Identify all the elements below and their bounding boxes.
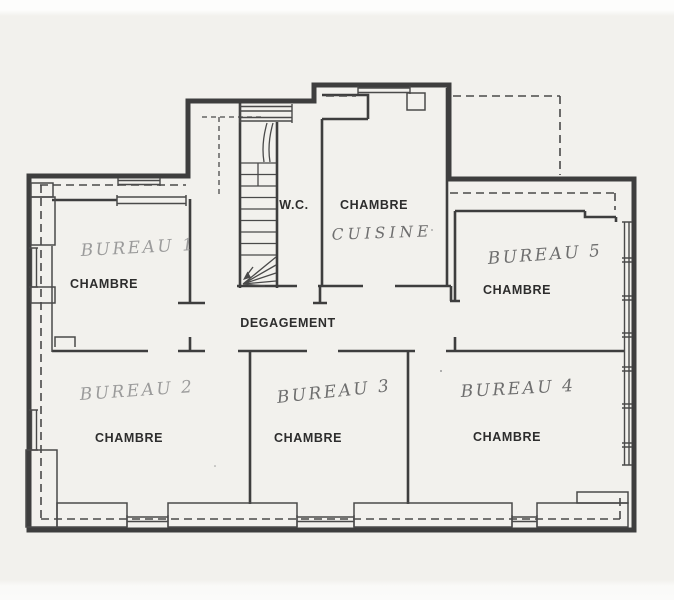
label-cuisine: CUISINE (331, 222, 432, 244)
window-bottom-1 (127, 515, 168, 527)
staircase (241, 123, 276, 286)
label-chambre-bureau-3: CHAMBRE (274, 431, 342, 445)
label-bureau-5: BUREAU 5 (486, 241, 603, 269)
floor-plan-scan: BUREAU 1 CHAMBRE W.C. CHAMBRE CUISINE BU… (0, 0, 674, 600)
label-bureau-1: BUREAU 1 (79, 235, 196, 261)
label-degagement: DEGAGEMENT (240, 316, 336, 330)
floor-plan-drawing: BUREAU 1 CHAMBRE W.C. CHAMBRE CUISINE BU… (0, 0, 674, 600)
window-bottom-2 (297, 515, 354, 527)
label-bureau-3: BUREAU 3 (275, 376, 392, 408)
label-bureau-2: BUREAU 2 (78, 377, 195, 405)
label-wc: W.C. (279, 198, 308, 212)
outer-walls (29, 85, 634, 530)
interior-thin-lines (52, 93, 425, 352)
radiator-boxes (26, 183, 628, 527)
window-right-column (622, 222, 632, 465)
label-chambre-bureau-5: CHAMBRE (483, 283, 551, 297)
label-bureau-4: BUREAU 4 (459, 376, 576, 402)
label-chambre-cuisine: CHAMBRE (340, 198, 408, 212)
heating-pipes-dashed (40, 96, 620, 519)
room-labels: BUREAU 1 CHAMBRE W.C. CHAMBRE CUISINE BU… (70, 198, 603, 445)
window-stair-top (240, 104, 292, 123)
stair-opening-dashed (202, 117, 262, 195)
window-bottom-3 (512, 515, 537, 527)
windows (29, 86, 632, 527)
kitchen-cupboard (407, 93, 425, 110)
label-chambre-bureau-2: CHAMBRE (95, 431, 163, 445)
label-chambre-bureau-1: CHAMBRE (70, 277, 138, 291)
label-chambre-bureau-4: CHAMBRE (473, 430, 541, 444)
